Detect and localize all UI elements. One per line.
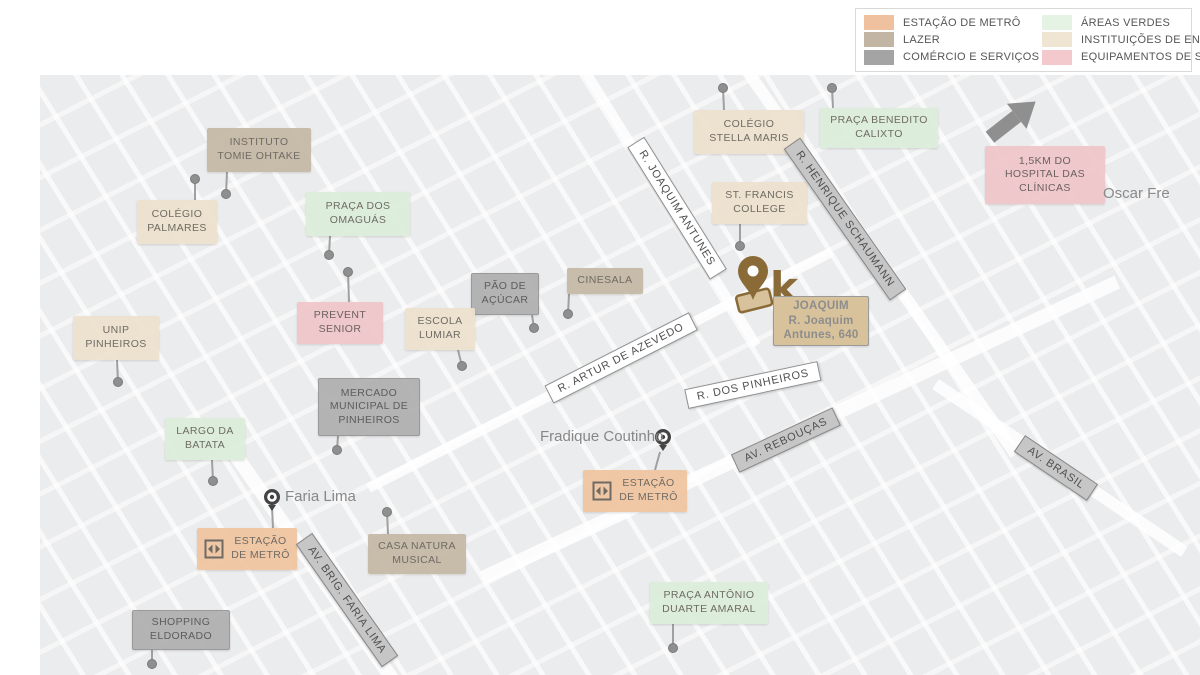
legend-label: INSTITUIÇÕES DE ENSINO <box>1081 34 1200 46</box>
street-label-r-dos-pinheiros: R. DOS PINHEIROS <box>684 361 821 409</box>
legend-swatch-lazer <box>864 32 894 47</box>
poi-prevent-senior: PREVENTSENIOR <box>297 302 383 344</box>
legend-item-verdes: ÁREAS VERDES <box>1042 14 1200 31</box>
legend-label: LAZER <box>903 34 940 46</box>
station-label-fradique-coutinho: Fradique Coutinho <box>540 428 663 445</box>
legend-swatch-metro <box>864 15 894 30</box>
legend-label: EQUIPAMENTOS DE SAÚDE <box>1081 51 1200 63</box>
poi-unip-pinheiros: UNIPPINHEIROS <box>73 316 159 360</box>
location-map-page: k INSTITUTOTOMIE OHTAKECOLÉGIOPALMARESPR… <box>0 0 1200 675</box>
poi-escola-lumiar: ESCOLALUMIAR <box>405 308 475 350</box>
station-label-faria-lima: Faria Lima <box>285 488 356 505</box>
legend-label: COMÉRCIO E SERVIÇOS <box>903 51 1039 63</box>
poi-colegio-palmares: COLÉGIOPALMARES <box>137 200 217 244</box>
legend-item-lazer: LAZER <box>864 31 1042 48</box>
legend-item-comercio: COMÉRCIO E SERVIÇOS <box>864 49 1042 66</box>
poi-shopping-eldorado: SHOPPINGELDORADO <box>132 610 230 650</box>
poi-largo-da-batata: LARGO DABATATA <box>165 418 245 460</box>
legend-item-ensino: INSTITUIÇÕES DE ENSINO <box>1042 31 1200 48</box>
poi-instituto-tomie-ohtake: INSTITUTOTOMIE OHTAKE <box>207 128 311 172</box>
metro-logo-icon <box>204 539 224 559</box>
street-label-av-reboucas: AV. REBOUÇAS <box>731 407 841 473</box>
poi-joaquim-property-label: JOAQUIMR. JoaquimAntunes, 640 <box>773 296 869 346</box>
street-text-oscar-freire: Oscar Fre <box>1103 185 1170 202</box>
poi-praca-dos-omaguas: PRAÇA DOSOMAGUÁS <box>306 192 410 236</box>
poi-casa-natura-musical: CASA NATURAMUSICAL <box>368 534 466 574</box>
legend-item-saude: EQUIPAMENTOS DE SAÚDE <box>1042 49 1200 66</box>
poi-praca-antonio-duarte-amaral: PRAÇA ANTÔNIODUARTE AMARAL <box>650 582 768 624</box>
poi-estacao-de-metro-faria-lima: ESTAÇÃODE METRÔ <box>197 528 297 570</box>
legend-item-metro: ESTAÇÃO DE METRÔ <box>864 14 1042 31</box>
metro-logo-icon <box>592 481 612 501</box>
poi-praca-benedito-calixto: PRAÇA BENEDITOCALIXTO <box>820 108 938 148</box>
legend-label: ESTAÇÃO DE METRÔ <box>903 17 1021 29</box>
poi-estacao-de-metro-fradique: ESTAÇÃODE METRÔ <box>583 470 687 512</box>
legend: ESTAÇÃO DE METRÔ LAZER COMÉRCIO E SERVIÇ… <box>855 8 1192 72</box>
poi-hospital-das-clinicas: 1,5KM DOHOSPITAL DASCLÍNICAS <box>985 146 1105 204</box>
legend-swatch-saude <box>1042 50 1072 65</box>
legend-swatch-verdes <box>1042 15 1072 30</box>
street-label-av-brasil: AV. BRASIL <box>1014 435 1098 501</box>
map-annotations: INSTITUTOTOMIE OHTAKECOLÉGIOPALMARESPRAÇ… <box>0 0 1200 675</box>
legend-swatch-ensino <box>1042 32 1072 47</box>
poi-st-francis-college: ST. FRANCISCOLLEGE <box>712 182 807 224</box>
legend-swatch-comercio <box>864 50 894 65</box>
legend-label: ÁREAS VERDES <box>1081 17 1170 29</box>
poi-mercado-municipal-de-pinheiros: MERCADOMUNICIPAL DEPINHEIROS <box>318 378 420 436</box>
street-label-r-artur-de-azevedo: R. ARTUR DE AZEVEDO <box>544 312 697 403</box>
poi-pao-de-acucar: PÃO DEAÇÚCAR <box>471 273 539 315</box>
poi-cinesala: CINESALA <box>567 268 643 294</box>
